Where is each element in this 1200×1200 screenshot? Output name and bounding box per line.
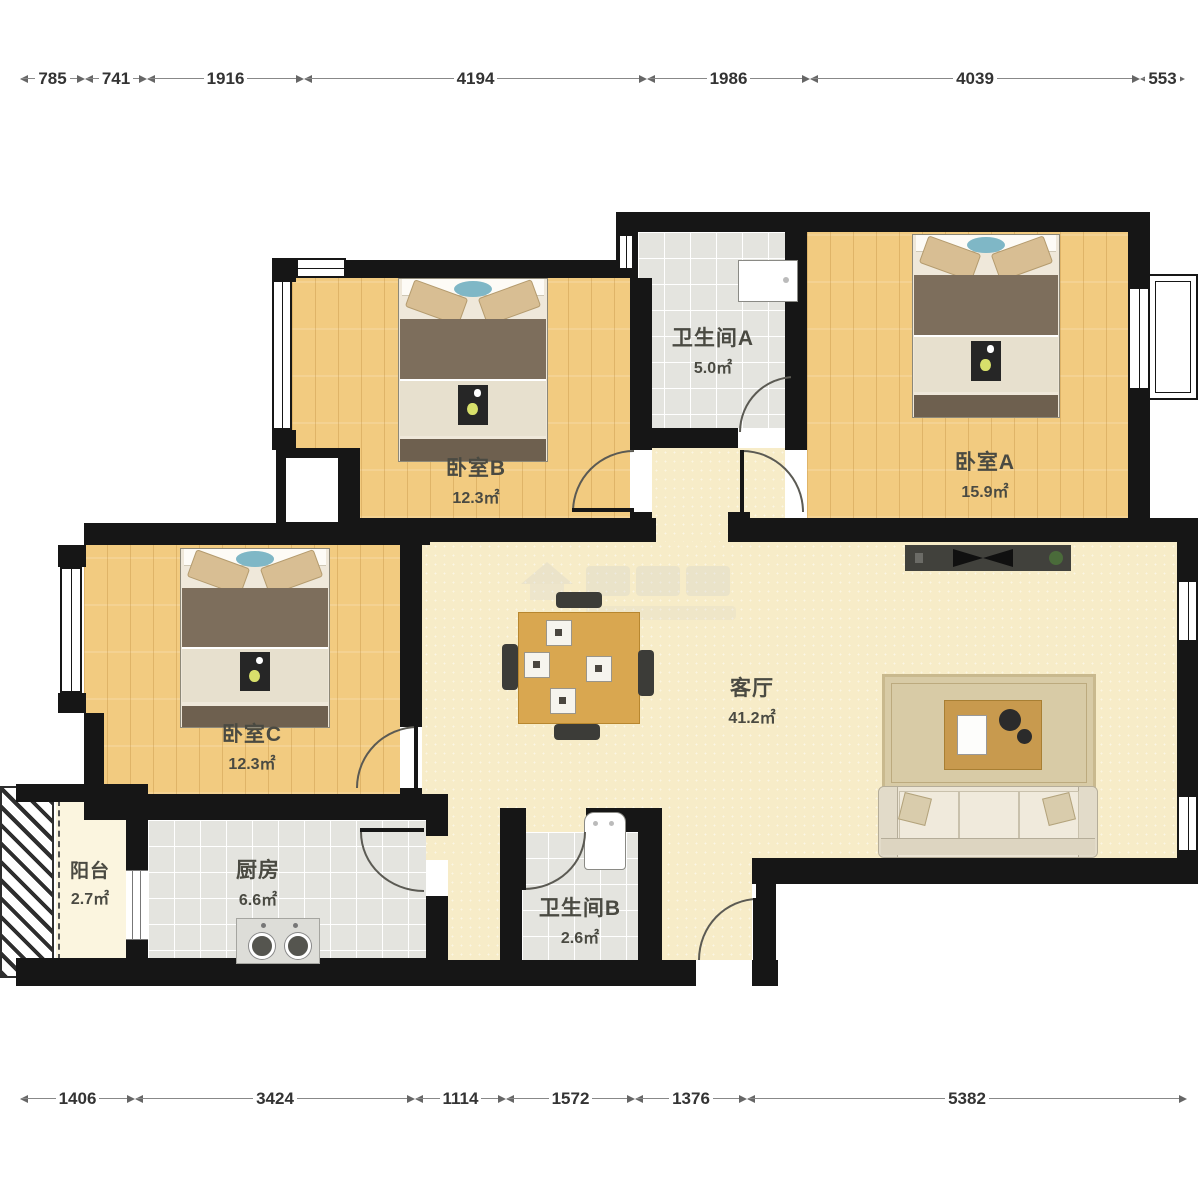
door-leaf-bedroomB: [572, 508, 634, 512]
faucet-dot: [783, 277, 789, 283]
wall-segment: [1177, 542, 1198, 580]
dimension-top-1986: 1986: [647, 70, 810, 88]
room-area: 12.3㎡: [222, 750, 282, 774]
burner-icon: [285, 933, 311, 959]
door-leaf-bathroomB: [522, 832, 526, 890]
room-label-bathroomA: 卫生间A 5.0㎡: [672, 322, 754, 378]
room-name: 卫生间A: [672, 322, 754, 352]
wall-segment: [1128, 212, 1150, 287]
wall-segment: [638, 808, 662, 986]
room-label-kitchen: 厨房 6.6㎡: [236, 854, 280, 910]
dining-chair-seat: [586, 656, 612, 682]
dining-chair-back: [556, 592, 602, 608]
room-name: 卫生间B: [539, 892, 621, 922]
bed-base: [914, 395, 1057, 417]
room-label-living: 客厅 41.2㎡: [728, 672, 775, 728]
tv-icon: [953, 549, 983, 567]
coffee-table: [944, 700, 1042, 770]
bed-blanket: [914, 275, 1057, 335]
wall-segment: [58, 545, 86, 567]
wall-segment: [638, 428, 738, 448]
wall-segment: [345, 260, 637, 278]
room-name: 卧室C: [222, 718, 282, 748]
watermark-text-block: [636, 566, 680, 596]
room-area: 41.2㎡: [728, 704, 775, 728]
room-area: 15.9㎡: [955, 478, 1015, 502]
bed-blanket: [400, 319, 545, 379]
wall-segment: [16, 958, 440, 986]
room-area: 2.6㎡: [539, 924, 621, 948]
stove: [236, 918, 320, 964]
bed-bench-tv: [971, 341, 1000, 381]
door-leaf-entrance: [753, 898, 759, 962]
dimension-top-553: 553: [1140, 70, 1185, 88]
bay-window-bedroomA: [1148, 274, 1198, 400]
room-label-bedroomA: 卧室A 15.9㎡: [955, 446, 1015, 502]
wall-segment: [272, 258, 296, 282]
bed-bedroomA: [912, 234, 1060, 418]
dining-chair-back: [554, 724, 600, 740]
wall-segment: [752, 858, 1198, 884]
wall-segment: [500, 808, 526, 832]
wall-segment: [272, 430, 296, 450]
dimension-top-4194: 4194: [304, 70, 647, 88]
bed-cushion: [967, 237, 1005, 253]
bed-blanket: [182, 588, 327, 647]
decor-kettle: [999, 709, 1021, 731]
dimension-bottom-5382: 5382: [747, 1090, 1187, 1108]
room-label-balcony: 阳台 2.7㎡: [70, 856, 110, 909]
room-label-bedroomB: 卧室B 12.3㎡: [446, 452, 506, 508]
wall-segment: [728, 518, 1198, 542]
bed-bench-tv: [240, 652, 270, 691]
room-label-bathroomB: 卫生间B 2.6㎡: [539, 892, 621, 948]
sofa: [878, 786, 1098, 858]
bed-bench-tv: [458, 385, 488, 425]
room-name: 卧室B: [446, 452, 506, 482]
tv-icon: [983, 549, 1013, 567]
wall-segment: [400, 788, 422, 820]
washbasin-bathroomA: [738, 260, 798, 302]
wall-segment: [1177, 642, 1198, 795]
dimension-bottom-1572: 1572: [506, 1090, 635, 1108]
watermark-text-block: [686, 566, 730, 596]
room-area: 2.7㎡: [70, 885, 110, 909]
door-leaf-bedroomC: [414, 726, 418, 788]
room-area: 5.0㎡: [672, 354, 754, 378]
dining-chair-seat: [546, 620, 572, 646]
sofa-cushion: [959, 791, 1019, 841]
balcony-sliding-door: [126, 870, 148, 940]
wall-segment: [752, 960, 778, 986]
water-heater-bathroomB: [584, 812, 626, 870]
room-area: 12.3㎡: [446, 484, 506, 508]
slider-line: [132, 871, 133, 939]
dimension-bottom-1114: 1114: [415, 1090, 506, 1108]
door-leaf-bathroomA: [791, 376, 795, 432]
plant-icon: [1049, 551, 1063, 565]
shaft-void: [286, 458, 338, 522]
room-name: 厨房: [236, 854, 280, 884]
wall-segment: [500, 808, 522, 986]
wall-segment: [58, 693, 86, 713]
stove-knob: [293, 923, 298, 928]
wall-segment: [795, 428, 807, 448]
window-bedroomA-wall: [1128, 287, 1150, 390]
tv-cabinet: [905, 545, 1071, 571]
wall-segment: [630, 278, 652, 450]
room-name: 客厅: [728, 672, 775, 702]
dimension-top-785: 785: [20, 70, 85, 88]
dimension-top-1916: 1916: [147, 70, 304, 88]
balcony-dashed-rail: [58, 800, 60, 960]
wall-segment: [400, 545, 422, 727]
book: [957, 715, 987, 755]
room-name: 卧室A: [955, 446, 1015, 476]
room-name: 阳台: [70, 856, 110, 883]
door-leaf-bedroomA: [740, 450, 744, 514]
room-area: 6.6㎡: [236, 886, 280, 910]
dimension-top-741: 741: [85, 70, 147, 88]
balcony-hatch: [0, 786, 54, 978]
wall-segment: [84, 523, 430, 545]
dining-chair-seat: [550, 688, 576, 714]
wall-segment: [426, 820, 448, 836]
dining-chair-back: [502, 644, 518, 690]
window-bathroomA: [618, 234, 634, 270]
bed-cushion: [236, 551, 274, 567]
door-leaf-kitchen: [360, 828, 424, 832]
dimension-bottom-1376: 1376: [635, 1090, 747, 1108]
decor-cup: [1017, 729, 1032, 744]
bed-bedroomC: [180, 548, 330, 728]
window-bedroomC-bay: [60, 567, 82, 693]
wall-segment: [126, 938, 148, 968]
window-bedroomB-top: [296, 258, 346, 278]
speaker-icon: [915, 553, 923, 563]
room-label-bedroomC: 卧室C 12.3㎡: [222, 718, 282, 774]
dimension-bottom-3424: 3424: [135, 1090, 415, 1108]
slider-line: [140, 871, 141, 939]
bed-bedroomB: [398, 278, 548, 462]
window-bedroomB-bay: [272, 280, 292, 430]
sofa-back: [881, 838, 1095, 855]
door-arc-bedroomA: [742, 450, 804, 512]
heater-dot: [593, 821, 598, 826]
wall-segment: [84, 713, 104, 799]
stove-knob: [261, 923, 266, 928]
dining-chair-seat: [524, 652, 550, 678]
dining-chair-back: [638, 650, 654, 696]
heater-dot: [609, 821, 614, 826]
window-living-upper: [1177, 580, 1198, 642]
floor-plan: 卫生间A 5.0㎡ 卧室A 15.9㎡ 卧室B 12.3㎡ 卧室C 12.3㎡ …: [0, 0, 1200, 1200]
window-living-lower: [1177, 795, 1198, 852]
burner-icon: [249, 933, 275, 959]
wall-segment: [426, 896, 448, 986]
wall-segment: [616, 212, 1150, 232]
wall-segment: [84, 794, 448, 820]
dimension-bottom-1406: 1406: [20, 1090, 135, 1108]
wall-segment: [1128, 390, 1150, 518]
dimension-top-4039: 4039: [810, 70, 1140, 88]
